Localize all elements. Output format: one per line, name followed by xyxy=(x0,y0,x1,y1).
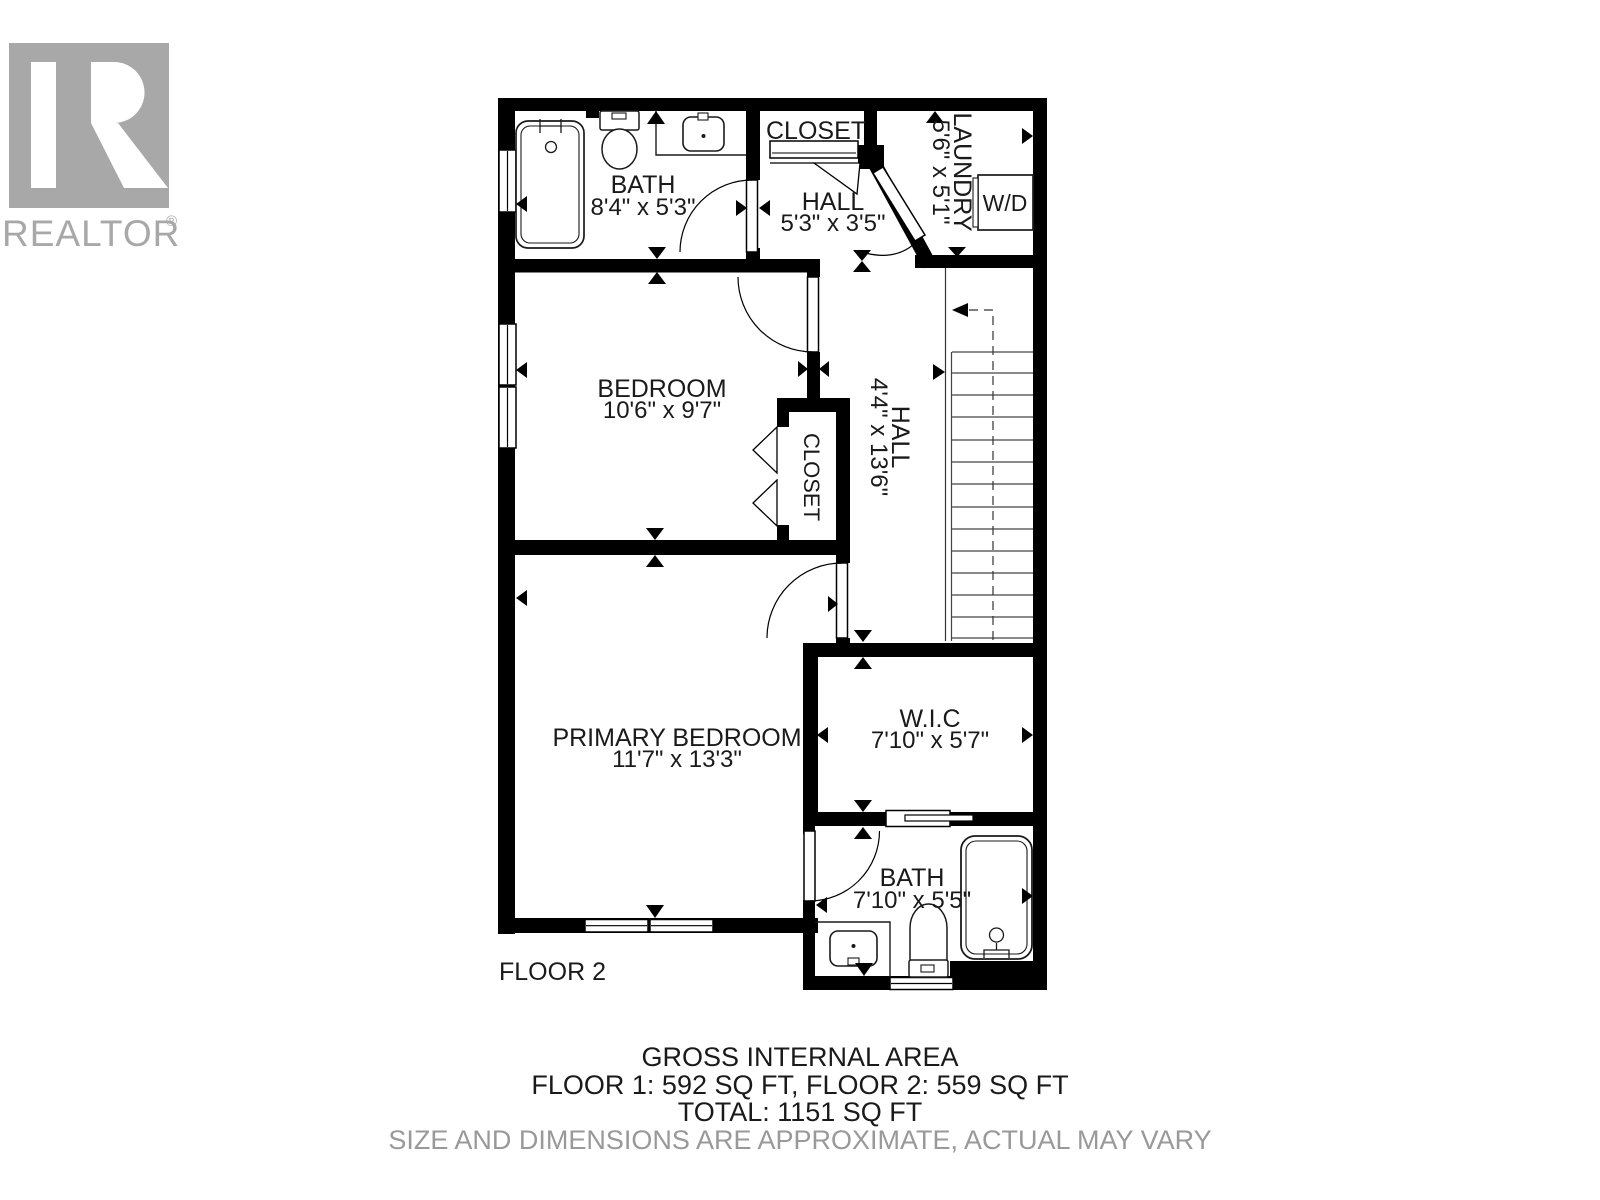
floorplan-drawing: REALTOR ® xyxy=(0,0,1600,1200)
marker-up-icon xyxy=(648,272,666,284)
bathtub-icon xyxy=(516,119,584,248)
marker-up-icon xyxy=(854,657,872,669)
wall-tub-alcove xyxy=(950,961,1033,976)
room-labels: BATH 8'4" x 5'3" CLOSET HALL 5'3" x 3'5"… xyxy=(552,112,1027,914)
footer: GROSS INTERNAL AREA FLOOR 1: 592 SQ FT, … xyxy=(388,1042,1211,1155)
stairs-direction-line xyxy=(968,310,993,640)
label-hall-top-dims: 5'3" x 3'5" xyxy=(781,210,886,237)
wall-wic-top xyxy=(803,643,1047,657)
doors xyxy=(680,163,973,901)
label-closet-top: CLOSET xyxy=(766,117,866,145)
marker-down-icon xyxy=(855,963,873,976)
wall-bath-hall-upper xyxy=(746,110,760,180)
door-arc-bedroom xyxy=(738,277,813,352)
wall-outer-top xyxy=(498,98,1047,111)
realtor-logo-r-stem xyxy=(31,62,56,188)
label-hall-main-dims: 4'4" x 13'6" xyxy=(865,378,892,496)
marker-up-icon xyxy=(853,261,871,272)
marker-left-icon xyxy=(516,590,527,606)
marker-right-icon xyxy=(1022,727,1033,743)
wall-bath-bedroom xyxy=(498,259,820,273)
toilet2-icon xyxy=(909,904,948,977)
realtor-logo: REALTOR ® xyxy=(2,43,180,254)
marker-down-icon xyxy=(854,630,872,642)
label-closet-mid: CLOSET xyxy=(799,433,824,521)
vanity-sink2-icon xyxy=(815,922,890,977)
marker-up-icon xyxy=(646,555,664,567)
realtor-wordmark: REALTOR xyxy=(2,213,180,254)
footer-disclaimer: SIZE AND DIMENSIONS ARE APPROXIMATE, ACT… xyxy=(388,1125,1211,1155)
wall-outer-right xyxy=(1033,98,1047,990)
marker-down-icon xyxy=(853,250,871,261)
label-primary-dims: 11'7" x 13'3" xyxy=(612,746,742,773)
marker-up-icon xyxy=(647,111,665,124)
marker-right-icon xyxy=(933,364,945,380)
marker-left-icon xyxy=(819,361,829,377)
wall-outer-left xyxy=(498,98,515,934)
label-wic-dims: 7'10" x 5'7" xyxy=(871,727,989,754)
door-leaf-bath2 xyxy=(804,831,815,901)
floor-number-label: FLOOR 2 xyxy=(499,958,606,986)
marker-down-icon xyxy=(646,528,664,540)
marker-down-icon xyxy=(646,905,664,918)
marker-right-icon xyxy=(1022,128,1033,144)
label-washer-dryer: W/D xyxy=(983,190,1028,216)
marker-right-icon xyxy=(736,200,747,216)
vanity-sink-icon xyxy=(656,110,746,155)
marker-up-icon xyxy=(854,827,872,839)
marker-down-icon xyxy=(854,800,872,812)
wall-bedroom-primary xyxy=(498,540,850,555)
marker-left-icon xyxy=(516,362,527,378)
door-leaf-bedroom xyxy=(808,277,819,352)
stairs-direction-arrow-icon xyxy=(952,303,968,317)
door-leaf-bath1 xyxy=(747,180,758,252)
door-bifold-closet-mid-a xyxy=(753,427,777,473)
door-leaf-primary xyxy=(837,563,848,638)
label-hall-main-group: HALL 4'4" x 13'6" xyxy=(865,378,914,496)
stairs xyxy=(946,268,1034,641)
bathtub2-icon xyxy=(961,836,1032,959)
marker-left-icon xyxy=(759,200,770,216)
drain-icon xyxy=(546,142,557,153)
wall-closet-mid-stub-a xyxy=(777,412,789,427)
door-pocket-wic-track xyxy=(905,815,973,821)
footer-floor-areas: FLOOR 1: 592 SQ FT, FLOOR 2: 559 SQ FT xyxy=(531,1070,1068,1100)
marker-down-icon xyxy=(648,247,666,259)
wall-stairs-top xyxy=(915,255,1047,268)
label-bath2-dims: 7'10" x 5'5" xyxy=(853,887,971,914)
door-bifold-closet-mid-b xyxy=(753,480,777,526)
wall-closet-mid-stub-b xyxy=(777,525,789,540)
wall-wic-left xyxy=(803,657,818,812)
wall-bedroom-hall-b xyxy=(807,352,820,399)
drain2-icon xyxy=(990,928,1004,942)
marker-left-icon xyxy=(817,727,828,743)
label-bedroom-dims: 10'6" x 9'7" xyxy=(603,397,721,424)
wall-closet-mid-top xyxy=(777,398,850,412)
wall-bedroom-hall-a xyxy=(807,259,820,277)
label-laundry-group: LAUNDRY 5'6" x 5'1" xyxy=(927,112,976,231)
marker-right-icon xyxy=(798,361,808,377)
footer-total-area: TOTAL: 1151 SQ FT xyxy=(678,1097,923,1127)
floorplan-page: REALTOR ® xyxy=(0,0,1600,1200)
marker-left-icon xyxy=(816,897,827,913)
label-laundry-dims: 5'6" x 5'1" xyxy=(927,120,954,225)
registered-trademark-icon: ® xyxy=(166,213,177,230)
wall-stub-bath1 xyxy=(586,98,599,118)
label-bath1-dims: 8'4" x 5'3" xyxy=(591,194,696,221)
toilet-icon xyxy=(600,111,639,169)
footer-gross-area: GROSS INTERNAL AREA xyxy=(641,1042,958,1072)
